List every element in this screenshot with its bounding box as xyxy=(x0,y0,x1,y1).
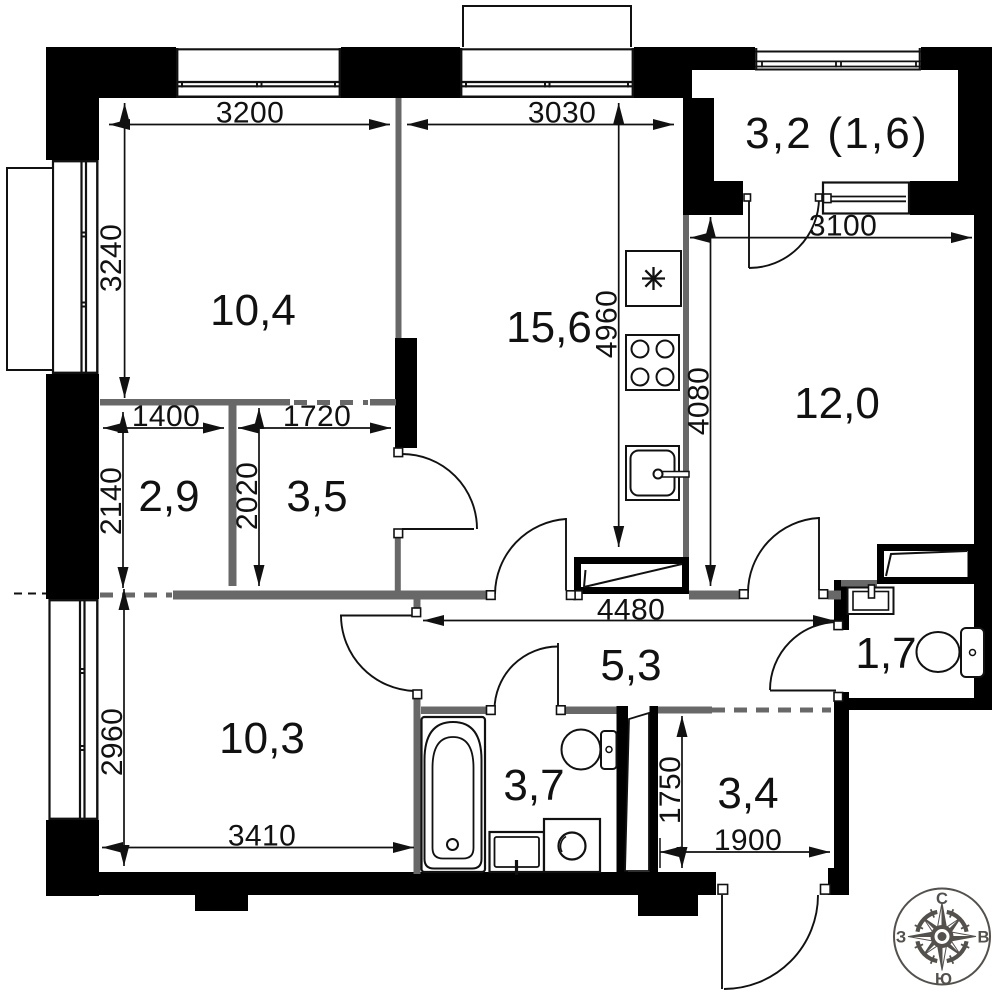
svg-text:2020: 2020 xyxy=(231,462,264,530)
svg-text:1750: 1750 xyxy=(654,756,687,824)
svg-text:4960: 4960 xyxy=(591,290,624,358)
svg-text:3030: 3030 xyxy=(528,97,596,130)
svg-text:1,7: 1,7 xyxy=(855,629,916,678)
svg-text:З: З xyxy=(896,929,906,947)
svg-text:3,4: 3,4 xyxy=(717,769,778,818)
svg-text:3200: 3200 xyxy=(216,97,284,130)
svg-text:2,9: 2,9 xyxy=(138,472,199,521)
svg-text:3,7: 3,7 xyxy=(503,761,564,810)
svg-text:5,3: 5,3 xyxy=(600,641,661,690)
svg-text:15,6: 15,6 xyxy=(506,303,592,352)
svg-text:Ю: Ю xyxy=(935,971,952,989)
svg-text:3240: 3240 xyxy=(95,224,128,292)
svg-text:1400: 1400 xyxy=(132,400,200,433)
svg-text:С: С xyxy=(936,890,948,908)
svg-text:3100: 3100 xyxy=(809,210,877,243)
svg-text:В: В xyxy=(978,929,990,947)
svg-text:2140: 2140 xyxy=(95,467,128,535)
svg-text:10,3: 10,3 xyxy=(219,714,305,763)
svg-text:1720: 1720 xyxy=(283,400,351,433)
svg-text:4080: 4080 xyxy=(683,367,716,435)
svg-text:3410: 3410 xyxy=(228,820,296,853)
svg-text:3,5: 3,5 xyxy=(286,472,347,521)
svg-text:1900: 1900 xyxy=(714,824,782,857)
svg-text:4480: 4480 xyxy=(597,594,665,627)
svg-text:10,4: 10,4 xyxy=(210,286,296,335)
svg-text:3,2 (1,6): 3,2 (1,6) xyxy=(745,109,929,158)
svg-text:2960: 2960 xyxy=(96,708,129,776)
svg-text:12,0: 12,0 xyxy=(794,379,880,428)
